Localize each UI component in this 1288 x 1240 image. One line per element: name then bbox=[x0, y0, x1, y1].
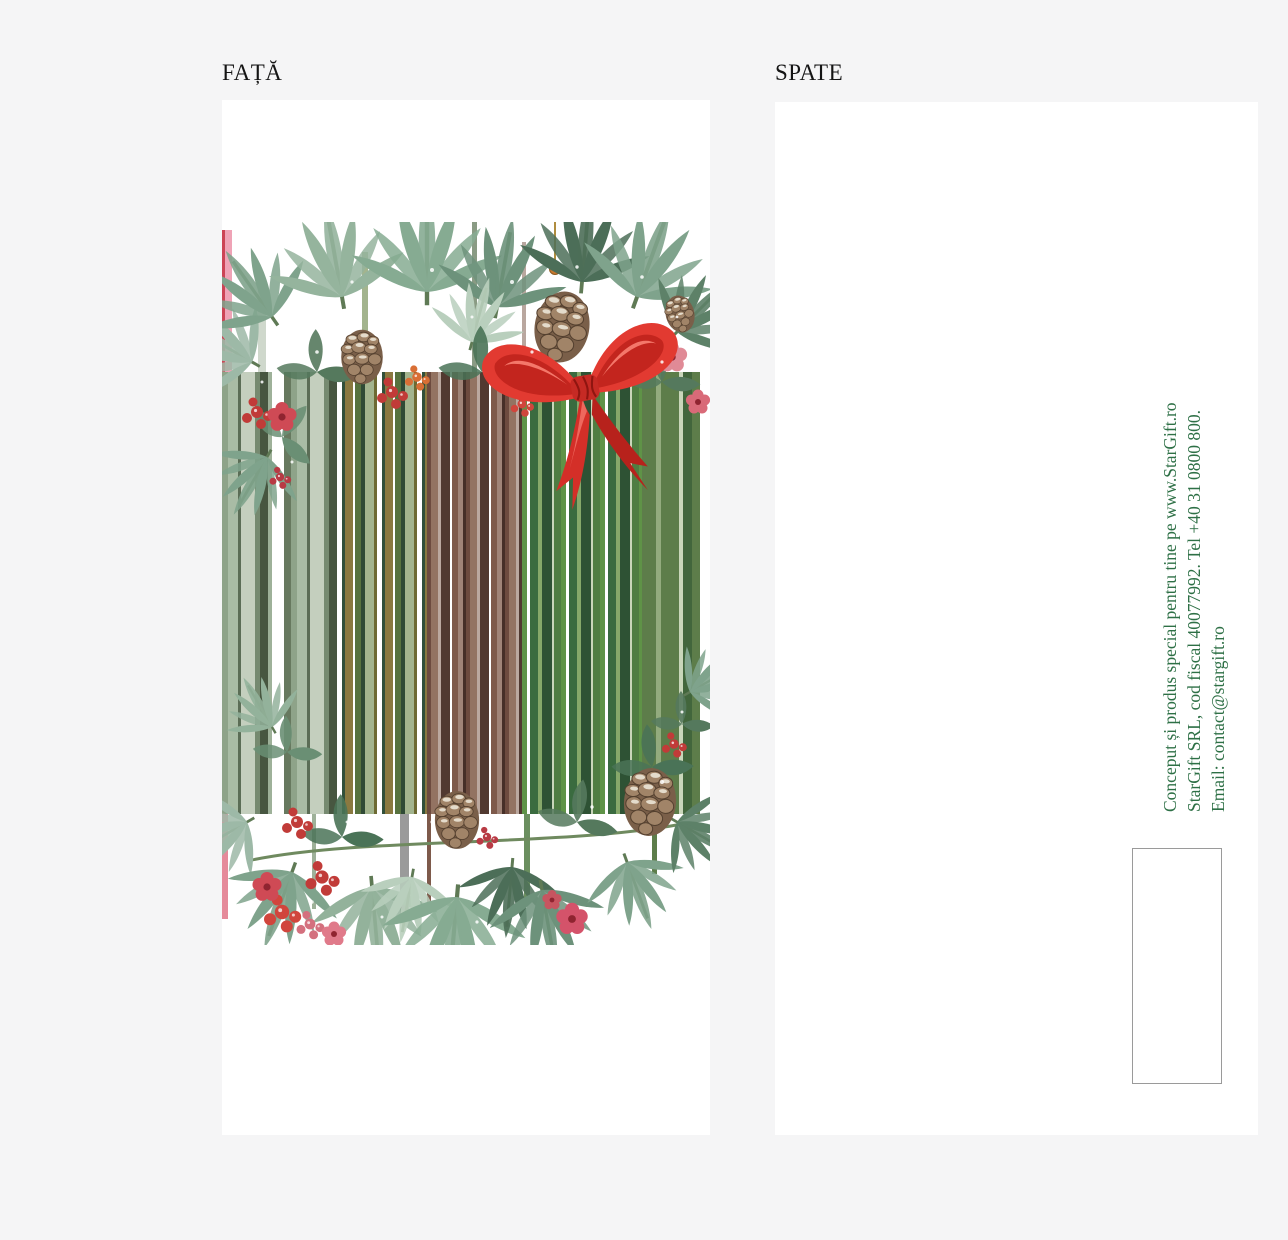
barcode-placeholder-box bbox=[1132, 848, 1222, 1084]
christmas-garland-artwork bbox=[222, 222, 710, 945]
gift-card-front-preview bbox=[222, 100, 710, 1135]
gift-card-back-preview: Conceput și produs special pentru tine p… bbox=[775, 102, 1258, 1135]
glitch-stripes-center bbox=[222, 372, 710, 814]
info-line-company: StarGift SRL, cod fiscal 40077992. Tel +… bbox=[1182, 300, 1206, 812]
front-side-label: FAȚĂ bbox=[222, 60, 282, 86]
back-side-label: SPATE bbox=[775, 60, 843, 86]
back-info-vertical-text: Conceput și produs special pentru tine p… bbox=[1158, 300, 1234, 812]
info-line-concept: Conceput și produs special pentru tine p… bbox=[1158, 300, 1182, 812]
info-line-email: Email: contact@stargift.ro bbox=[1206, 300, 1230, 812]
